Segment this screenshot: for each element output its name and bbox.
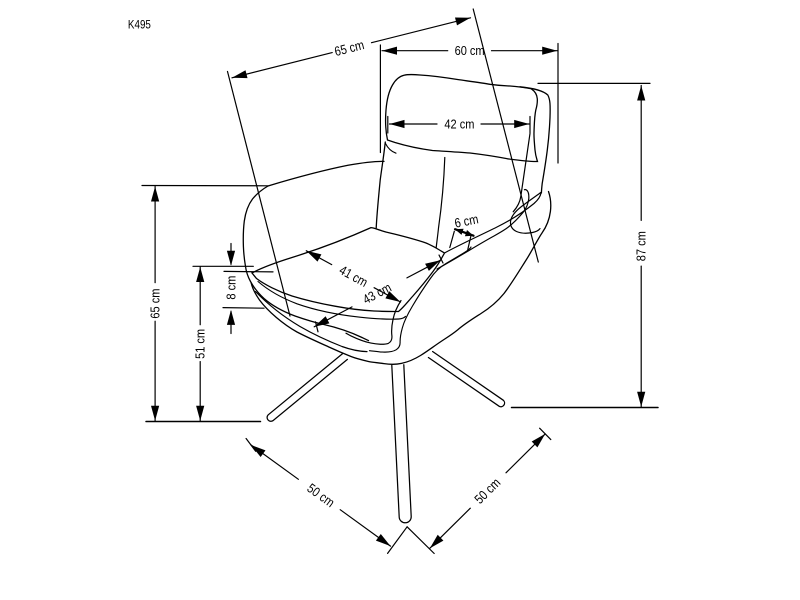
svg-text:K495: K495 xyxy=(128,19,151,31)
svg-text:6 cm: 6 cm xyxy=(453,211,479,230)
svg-text:8 cm: 8 cm xyxy=(223,276,238,300)
svg-text:51 cm: 51 cm xyxy=(193,329,208,359)
svg-text:50 cm: 50 cm xyxy=(471,475,503,507)
svg-text:41 cm: 41 cm xyxy=(337,262,371,289)
svg-text:65 cm: 65 cm xyxy=(333,37,366,59)
svg-text:87 cm: 87 cm xyxy=(634,231,649,261)
svg-text:50 cm: 50 cm xyxy=(304,480,337,510)
svg-text:65 cm: 65 cm xyxy=(147,289,162,319)
svg-text:42 cm: 42 cm xyxy=(444,116,474,131)
svg-text:60 cm: 60 cm xyxy=(455,43,485,58)
